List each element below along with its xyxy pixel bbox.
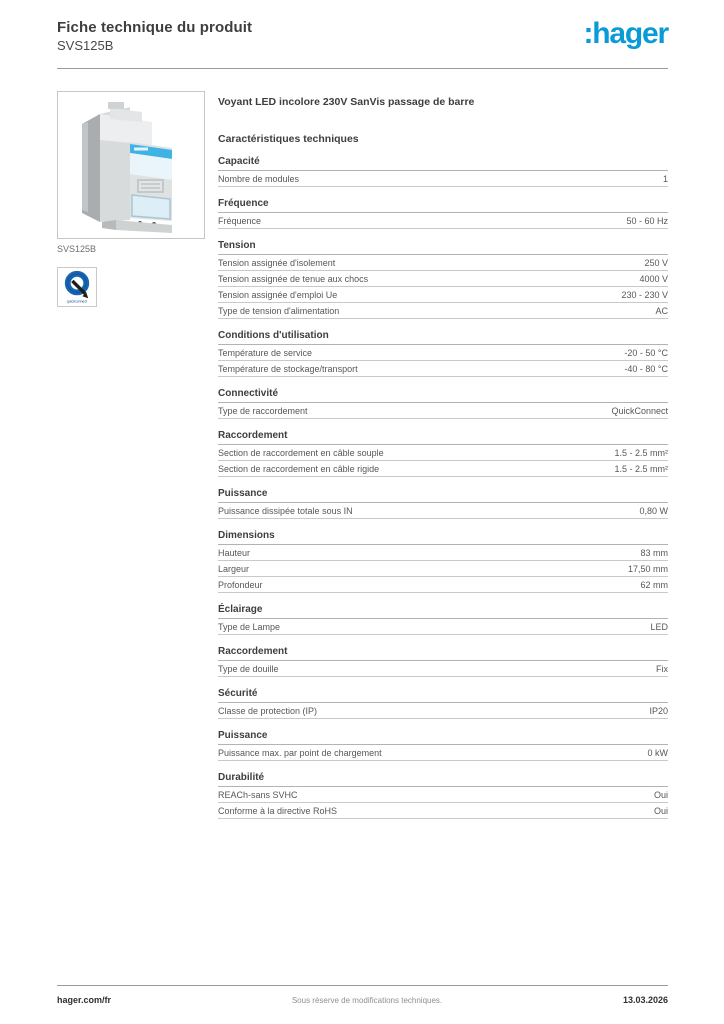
spec-section: FréquenceFréquence50 - 60 Hz [218,198,668,229]
spec-label: Largeur [218,564,249,574]
spec-value: 50 - 60 Hz [626,216,668,226]
spec-label: Puissance max. par point de chargement [218,748,382,758]
spec-row: Température de service-20 - 50 °C [218,345,668,361]
spec-section-title: Éclairage [218,604,668,619]
spec-section: RaccordementType de douilleFix [218,646,668,677]
product-image-caption: SVS125B [57,244,205,254]
spec-section: Conditions d'utilisationTempérature de s… [218,330,668,377]
spec-section-title: Raccordement [218,646,668,661]
spec-row: Hauteur83 mm [218,545,668,561]
spec-value: 0 kW [647,748,668,758]
spec-value: 250 V [644,258,668,268]
spec-label: Puissance dissipée totale sous IN [218,506,353,516]
spec-label: Type de Lampe [218,622,280,632]
spec-section: RaccordementSection de raccordement en c… [218,430,668,477]
spec-section-title: Dimensions [218,530,668,545]
spec-row: Section de raccordement en câble souple1… [218,445,668,461]
spec-row: Puissance dissipée totale sous IN0,80 W [218,503,668,519]
spec-sections: CapacitéNombre de modules1FréquenceFréqu… [218,156,668,819]
spec-value: AC [655,306,668,316]
spec-row: Type de LampeLED [218,619,668,635]
spec-label: Nombre de modules [218,174,299,184]
spec-row: Tension assignée d'isolement250 V [218,255,668,271]
quickconnect-icon: quickconnect [58,268,96,306]
spec-row: Profondeur62 mm [218,577,668,593]
spec-label: Section de raccordement en câble rigide [218,464,379,474]
spec-label: Hauteur [218,548,250,558]
spec-section: DimensionsHauteur83 mmLargeur17,50 mmPro… [218,530,668,593]
spec-row: Conforme à la directive RoHSOui [218,803,668,819]
spec-label: Tension assignée d'emploi Ue [218,290,337,300]
spec-value: 62 mm [640,580,668,590]
spec-section-title: Puissance [218,488,668,503]
spec-section: TensionTension assignée d'isolement250 V… [218,240,668,319]
document-title: Fiche technique du produit [57,19,668,36]
spec-section: DurabilitéREACh-sans SVHCOuiConforme à l… [218,772,668,819]
hager-logo: :hager [584,19,669,49]
spec-value: 83 mm [640,548,668,558]
spec-value: Fix [656,664,668,674]
spec-section: SécuritéClasse de protection (IP)IP20 [218,688,668,719]
spec-section: ConnectivitéType de raccordementQuickCon… [218,388,668,419]
spec-value: -20 - 50 °C [624,348,668,358]
spec-label: Température de stockage/transport [218,364,358,374]
spec-section-title: Raccordement [218,430,668,445]
spec-label: Type de raccordement [218,406,308,416]
spec-value: 17,50 mm [628,564,668,574]
spec-row: Largeur17,50 mm [218,561,668,577]
main-content: SVS125B quickconnect Voyant LED incolore… [57,91,668,819]
spec-section: CapacitéNombre de modules1 [218,156,668,187]
spec-section: PuissancePuissance dissipée totale sous … [218,488,668,519]
footer-disclaimer: Sous réserve de modifications techniques… [292,996,442,1005]
spec-row: Puissance max. par point de chargement0 … [218,745,668,761]
spec-row: Température de stockage/transport-40 - 8… [218,361,668,377]
spec-row: Type de raccordementQuickConnect [218,403,668,419]
quickconnect-logo: quickconnect [57,267,97,307]
header-divider [57,68,668,69]
spec-section-title: Durabilité [218,772,668,787]
spec-section: PuissancePuissance max. par point de cha… [218,730,668,761]
spec-row: Section de raccordement en câble rigide1… [218,461,668,477]
spec-column: Voyant LED incolore 230V SanVis passage … [218,91,668,819]
tech-characteristics-title: Caractéristiques techniques [218,133,668,145]
spec-value: 0,80 W [639,506,668,516]
spec-row: Type de tension d'alimentationAC [218,303,668,319]
product-title: Voyant LED incolore 230V SanVis passage … [218,96,668,108]
spec-row: REACh-sans SVHCOui [218,787,668,803]
spec-value: 4000 V [639,274,668,284]
product-panel: SVS125B quickconnect [57,91,205,819]
spec-value: 1 [663,174,668,184]
spec-row: Nombre de modules1 [218,171,668,187]
spec-section-title: Tension [218,240,668,255]
product-image [57,91,205,239]
spec-value: QuickConnect [611,406,668,416]
product-code: SVS125B [57,38,668,53]
spec-section: ÉclairageType de LampeLED [218,604,668,635]
footer-divider [57,985,668,986]
datasheet-page: Fiche technique du produit SVS125B :hage… [0,0,724,1024]
footer-website-link[interactable]: hager.com/fr [57,995,111,1005]
product-photo-illustration [58,92,204,238]
spec-value: 1.5 - 2.5 mm² [614,464,668,474]
spec-value: LED [650,622,668,632]
spec-row: Type de douilleFix [218,661,668,677]
spec-label: Tension assignée d'isolement [218,258,335,268]
spec-label: Température de service [218,348,312,358]
page-footer: hager.com/fr Sous réserve de modificatio… [57,995,668,1005]
spec-label: Section de raccordement en câble souple [218,448,384,458]
spec-row: Tension assignée de tenue aux chocs4000 … [218,271,668,287]
spec-value: 1.5 - 2.5 mm² [614,448,668,458]
spec-label: REACh-sans SVHC [218,790,298,800]
footer-date: 13.03.2026 [623,995,668,1005]
spec-section-title: Conditions d'utilisation [218,330,668,345]
spec-section-title: Puissance [218,730,668,745]
spec-label: Conforme à la directive RoHS [218,806,337,816]
spec-label: Tension assignée de tenue aux chocs [218,274,368,284]
page-header: Fiche technique du produit SVS125B :hage… [57,19,668,53]
spec-value: IP20 [649,706,668,716]
spec-label: Type de douille [218,664,279,674]
spec-section-title: Sécurité [218,688,668,703]
spec-label: Fréquence [218,216,261,226]
spec-section-title: Capacité [218,156,668,171]
spec-label: Type de tension d'alimentation [218,306,339,316]
spec-label: Classe de protection (IP) [218,706,317,716]
spec-value: -40 - 80 °C [624,364,668,374]
spec-value: 230 - 230 V [621,290,668,300]
spec-value: Oui [654,806,668,816]
spec-label: Profondeur [218,580,263,590]
quickconnect-wordmark: quickconnect [67,300,87,304]
spec-row: Fréquence50 - 60 Hz [218,213,668,229]
spec-row: Tension assignée d'emploi Ue230 - 230 V [218,287,668,303]
spec-section-title: Connectivité [218,388,668,403]
spec-row: Classe de protection (IP)IP20 [218,703,668,719]
spec-section-title: Fréquence [218,198,668,213]
spec-value: Oui [654,790,668,800]
